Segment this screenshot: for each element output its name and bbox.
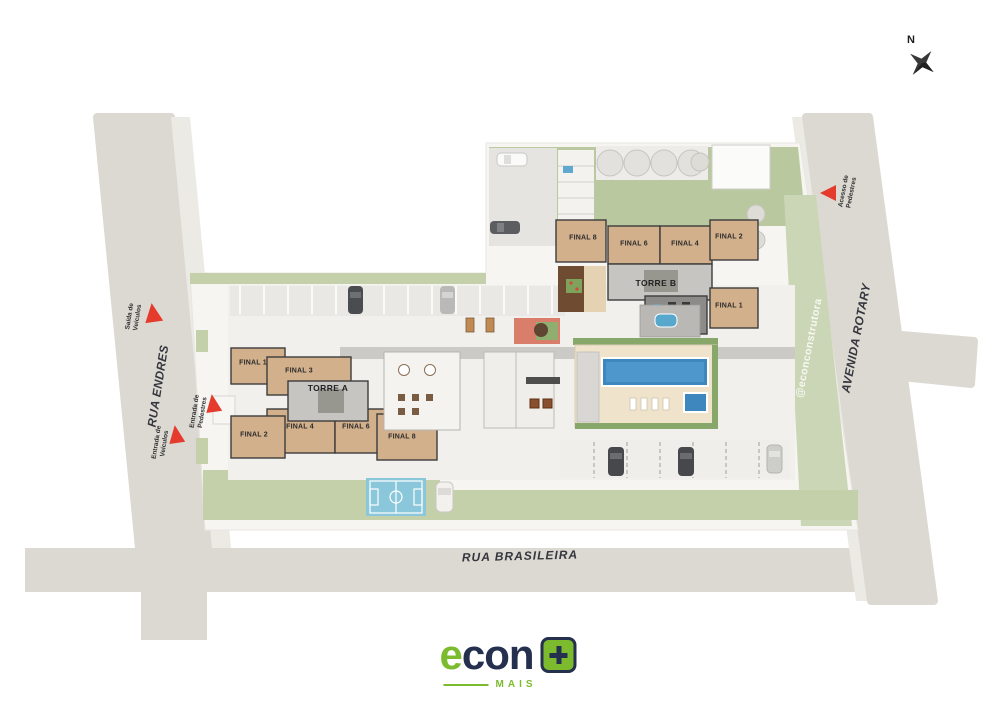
logo-text-mais: MAIS xyxy=(496,679,537,690)
torre-b-final8-label: FINAL 8 xyxy=(569,235,597,242)
car xyxy=(767,445,782,473)
bench xyxy=(486,318,494,332)
logo-underline xyxy=(443,684,488,686)
chair xyxy=(426,394,433,401)
lounger xyxy=(652,398,658,410)
round-table xyxy=(425,365,436,376)
car xyxy=(490,221,520,234)
plus-bar-vertical xyxy=(556,646,561,664)
logo-text-con: con xyxy=(462,634,534,676)
pergola-tree xyxy=(624,150,650,176)
pool-hedge-bottom xyxy=(575,423,718,429)
pergola-tree xyxy=(597,150,623,176)
round-table xyxy=(399,365,410,376)
torre-a-final3-label: FINAL 3 xyxy=(285,368,313,375)
plus-icon xyxy=(541,637,577,673)
compass-star-shade xyxy=(901,42,934,77)
car xyxy=(608,447,624,476)
north-parking-row xyxy=(230,286,565,316)
west-top-lawn-strip xyxy=(190,273,486,284)
torre-b-final2-label: FINAL 2 xyxy=(715,234,743,241)
logo-text-e: e xyxy=(439,634,461,676)
armchair xyxy=(543,399,552,408)
north-building xyxy=(712,145,770,189)
hall-block xyxy=(484,352,554,428)
car xyxy=(440,286,455,314)
jacuzzi xyxy=(655,314,677,327)
lounge-block xyxy=(384,352,460,430)
west-lawn-patch-1 xyxy=(196,330,208,352)
chair xyxy=(412,408,419,415)
tree xyxy=(691,153,709,171)
pool-ramp xyxy=(577,352,599,422)
torre-b-final1-label: FINAL 1 xyxy=(715,303,743,310)
torre-a-final8-label: FINAL 8 xyxy=(388,434,416,441)
torre-b-patio xyxy=(584,266,606,312)
car xyxy=(436,482,453,512)
torre-b-playset xyxy=(566,279,582,293)
playground-item xyxy=(563,166,573,173)
playset-dot xyxy=(575,287,578,290)
torre-b-label: TORRE B xyxy=(636,278,677,288)
compass-n-label: N xyxy=(907,34,915,46)
torre-a-final2-label: FINAL 2 xyxy=(240,432,268,439)
play-tree xyxy=(534,323,548,337)
compass-icon xyxy=(901,42,943,84)
car xyxy=(348,286,363,314)
torre-a-final1-label: FINAL 1 xyxy=(239,360,267,367)
car xyxy=(497,153,527,166)
torre-a-final4-label: FINAL 4 xyxy=(286,424,314,431)
lounger xyxy=(663,398,669,410)
econ-logo: econ MAIS xyxy=(439,634,576,690)
lounger xyxy=(630,398,636,410)
logo-subrow: MAIS xyxy=(439,679,576,690)
chair xyxy=(412,394,419,401)
pergola-tree xyxy=(651,150,677,176)
kids-pool xyxy=(684,393,707,412)
street-south-arm xyxy=(141,585,207,640)
pool-hedge-top xyxy=(573,338,718,345)
pool-hedge-right xyxy=(712,345,718,429)
bench xyxy=(466,318,474,332)
site-plan: N RUA ENDRES RUA BRASILEIRA AVENIDA ROTA… xyxy=(0,0,1000,707)
torre-b-final6-label: FINAL 6 xyxy=(620,241,648,248)
armchair xyxy=(530,399,539,408)
chair xyxy=(398,408,405,415)
logo-row: econ xyxy=(439,634,576,676)
football-field xyxy=(366,478,426,516)
lounger xyxy=(641,398,647,410)
chair xyxy=(398,394,405,401)
hall-console xyxy=(526,377,560,384)
main-pool-water xyxy=(606,362,704,382)
torre-b-final4-label: FINAL 4 xyxy=(671,241,699,248)
street-east-branch xyxy=(882,334,974,384)
car xyxy=(678,447,694,476)
west-lawn-patch-2 xyxy=(196,438,208,464)
torre-a-final6-label: FINAL 6 xyxy=(342,424,370,431)
torre-a-label: TORRE A xyxy=(308,383,349,393)
playset-dot xyxy=(569,281,572,284)
